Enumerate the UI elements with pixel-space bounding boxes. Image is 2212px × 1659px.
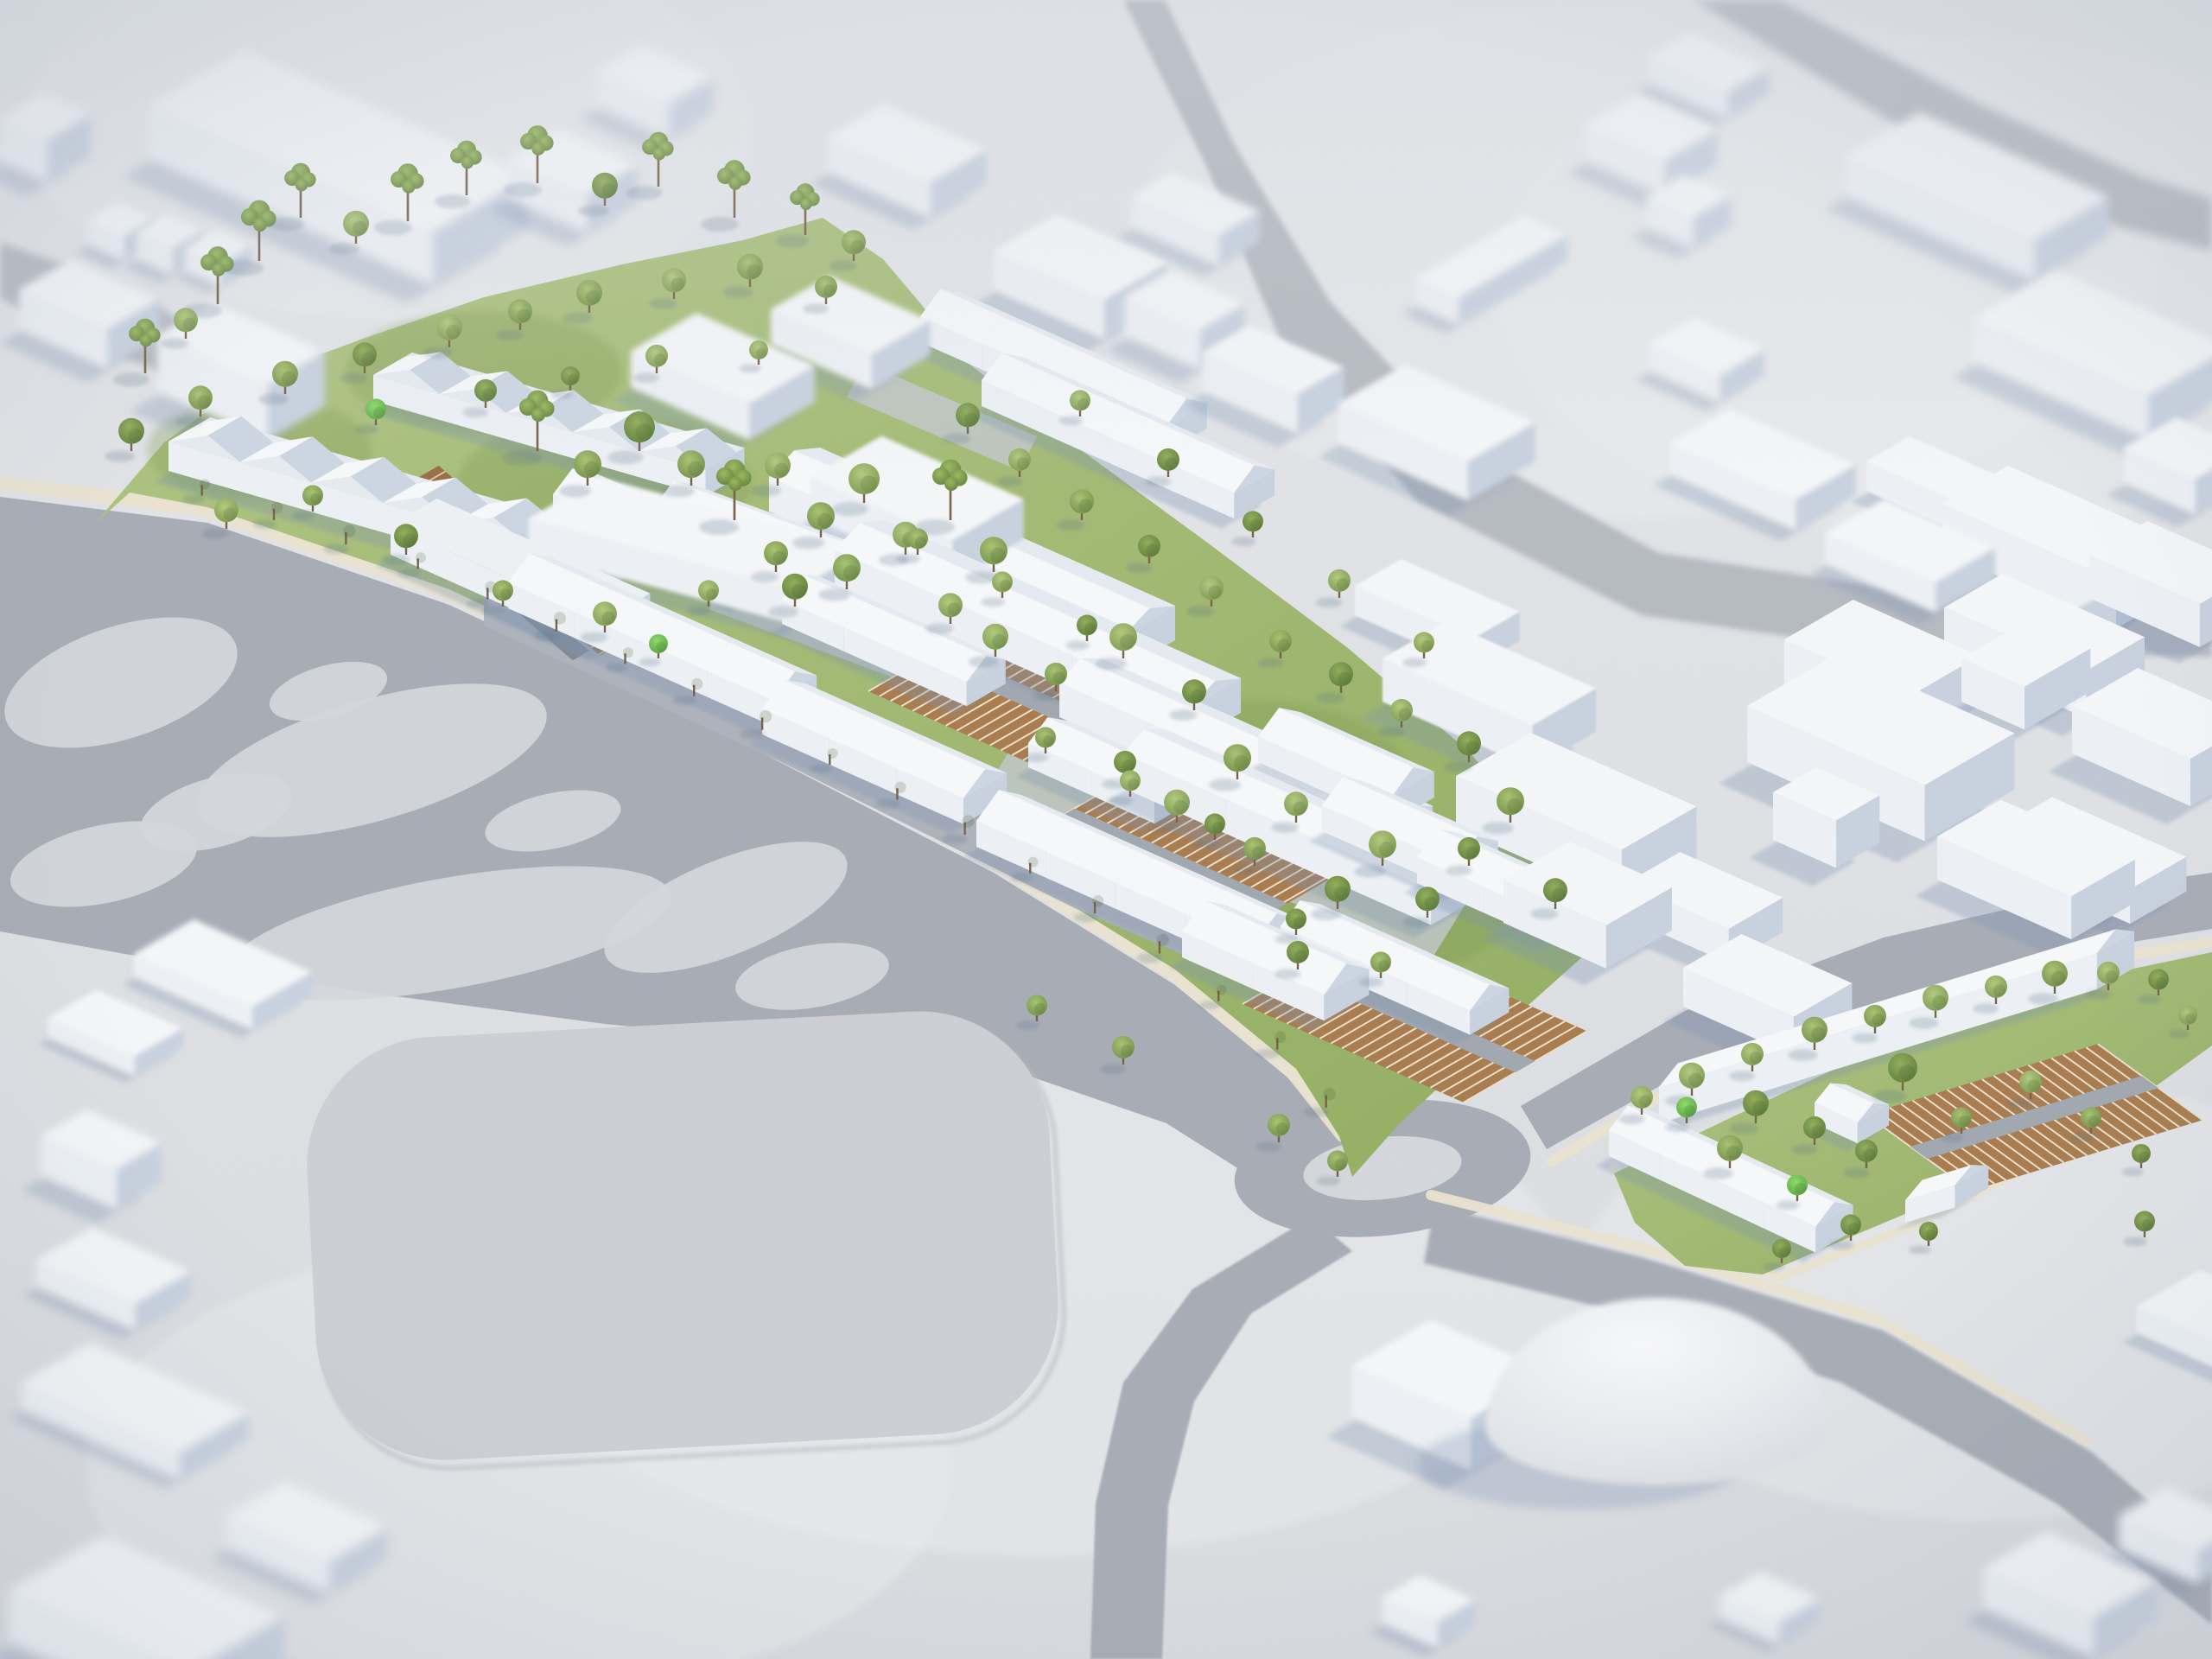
- vignette: [0, 0, 2212, 1659]
- masterplan-3d-render: [0, 0, 2212, 1659]
- render-stage: [0, 0, 2212, 1659]
- atmosphere-layer: [0, 0, 2212, 1659]
